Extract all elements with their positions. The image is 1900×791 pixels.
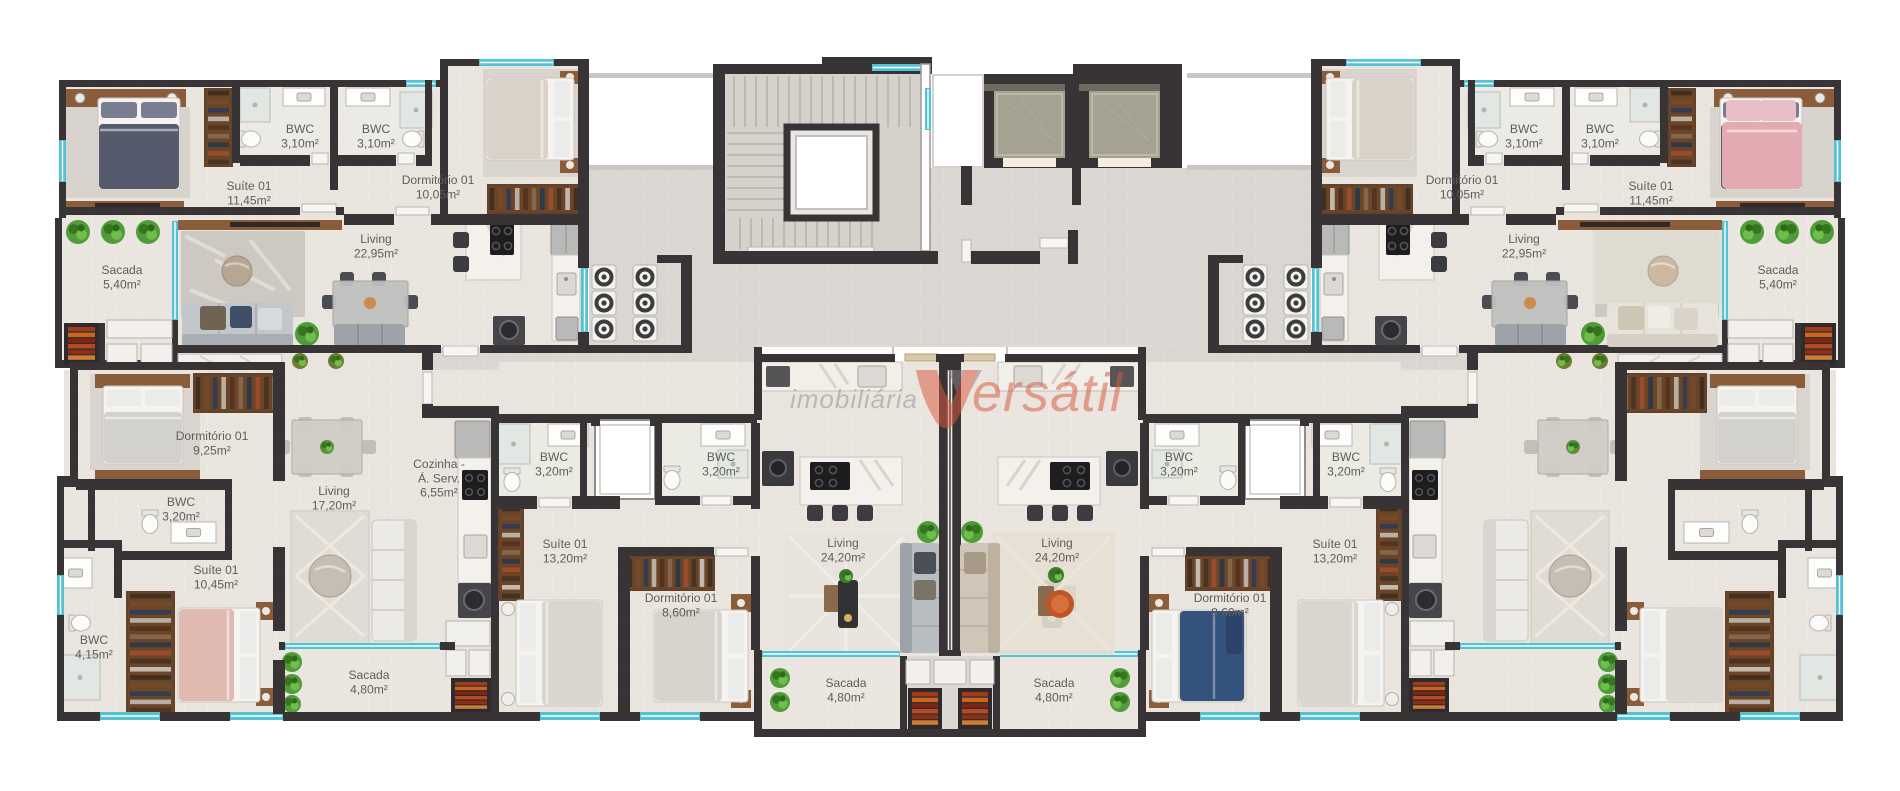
svg-text:Living24,20m²: Living24,20m²	[821, 536, 865, 564]
svg-text:Living22,95m²: Living22,95m²	[354, 232, 398, 260]
svg-text:imobiliária: imobiliária	[790, 384, 918, 414]
svg-text:Sacada4,80m²: Sacada4,80m²	[348, 668, 389, 696]
svg-text:Suíte 0111,45m²: Suíte 0111,45m²	[226, 179, 271, 207]
svg-text:BWC3,20m²: BWC3,20m²	[162, 495, 200, 523]
svg-text:BWC3,20m²: BWC3,20m²	[1160, 450, 1198, 478]
svg-text:BWC3,10m²: BWC3,10m²	[1581, 122, 1619, 150]
svg-text:Sacada5,40m²: Sacada5,40m²	[101, 263, 142, 291]
svg-text:BWC4,15m²: BWC4,15m²	[75, 633, 113, 661]
svg-text:ersátil: ersátil	[972, 363, 1124, 423]
svg-text:Suíte 0110,45m²: Suíte 0110,45m²	[193, 563, 238, 591]
svg-text:Living22,95m²: Living22,95m²	[1502, 232, 1546, 260]
svg-text:Living17,20m²: Living17,20m²	[312, 484, 356, 512]
svg-text:Sacada5,40m²: Sacada5,40m²	[1757, 263, 1798, 291]
svg-text:Suíte 0113,20m²: Suíte 0113,20m²	[1312, 537, 1357, 565]
svg-text:BWC3,20m²: BWC3,20m²	[702, 450, 740, 478]
svg-text:BWC3,20m²: BWC3,20m²	[535, 450, 573, 478]
svg-text:BWC3,20m²: BWC3,20m²	[1327, 450, 1365, 478]
svg-text:BWC3,10m²: BWC3,10m²	[357, 122, 395, 150]
svg-text:Sacada4,80m²: Sacada4,80m²	[825, 676, 866, 704]
svg-text:Suíte 0111,45m²: Suíte 0111,45m²	[1628, 179, 1673, 207]
svg-text:Cozinha -Á. Serv.6,55m²: Cozinha -Á. Serv.6,55m²	[413, 457, 465, 500]
svg-text:Suíte 0113,20m²: Suíte 0113,20m²	[542, 537, 587, 565]
svg-text:Living24,20m²: Living24,20m²	[1035, 536, 1079, 564]
svg-text:BWC3,10m²: BWC3,10m²	[281, 122, 319, 150]
svg-text:Sacada4,80m²: Sacada4,80m²	[1033, 676, 1074, 704]
svg-text:BWC3,10m²: BWC3,10m²	[1505, 122, 1543, 150]
